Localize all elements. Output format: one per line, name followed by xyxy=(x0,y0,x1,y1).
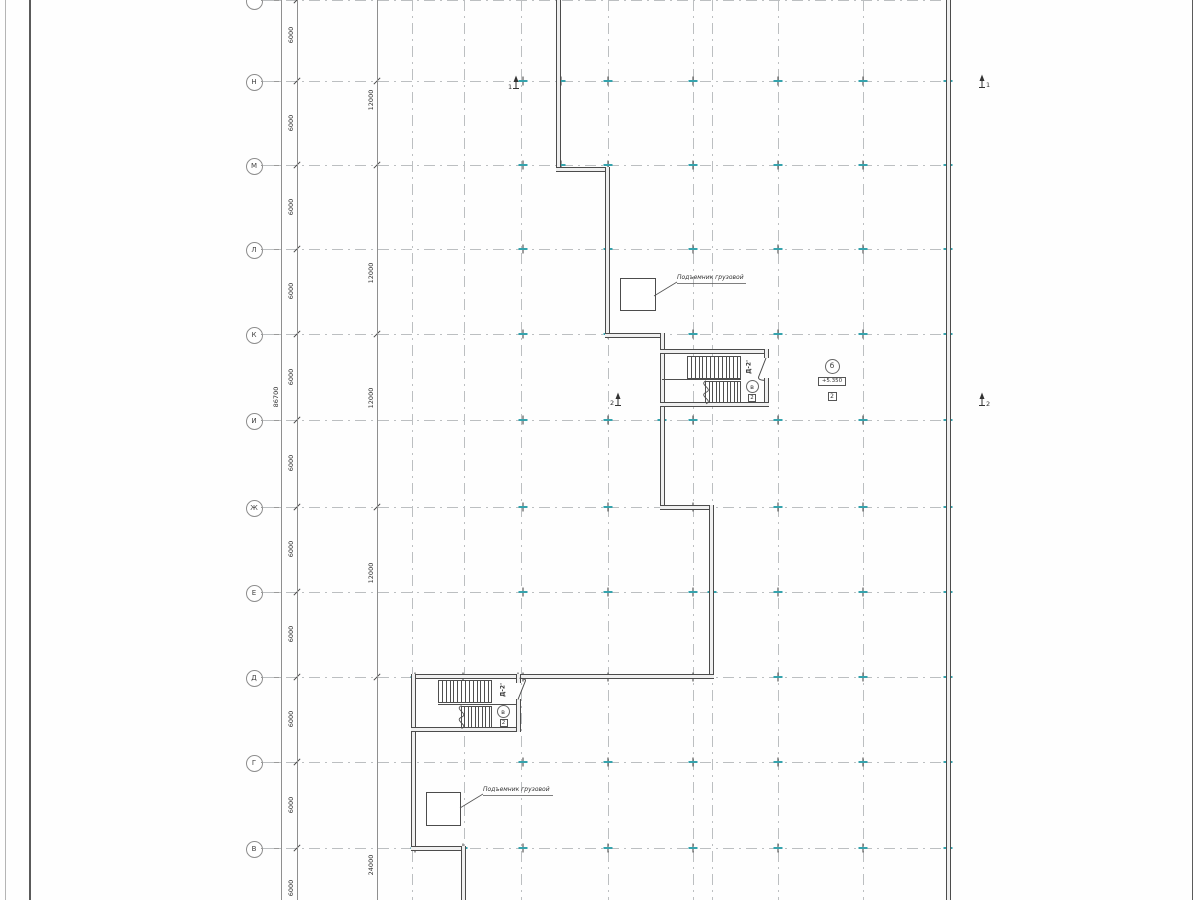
dim-label-6000: 6000 xyxy=(287,711,295,728)
axis-bubble: К xyxy=(246,327,263,344)
axis-tick-marker xyxy=(859,419,868,421)
axis-tick-marker xyxy=(774,591,783,593)
axis-tick-marker xyxy=(774,676,783,678)
stair-lower-ref-circle: в xyxy=(497,705,510,718)
axis-tick-marker xyxy=(519,80,528,82)
dim-label-6000: 6000 xyxy=(287,115,295,132)
axis-bubble: Ж xyxy=(246,500,263,517)
stair-upper-wall-top xyxy=(660,349,769,354)
wall-segment xyxy=(556,167,610,172)
axis-bubble: Н xyxy=(246,74,263,91)
dim-line-12000 xyxy=(377,0,378,900)
wall-segment xyxy=(660,505,714,510)
axis-tick-marker xyxy=(774,80,783,82)
stair-tread xyxy=(485,706,486,728)
axis-tick-marker xyxy=(774,847,783,849)
dim-label-6000: 6000 xyxy=(287,541,295,558)
axis-tick-marker xyxy=(774,506,783,508)
stair-tread xyxy=(702,356,703,379)
wall-segment xyxy=(461,846,466,900)
axis-tick-marker xyxy=(519,248,528,250)
axis-tick-marker xyxy=(689,333,698,335)
stair-tread xyxy=(737,381,738,403)
axis-tick-marker xyxy=(689,248,698,250)
frame-left-inner-line xyxy=(29,0,31,900)
stair-tread xyxy=(723,381,724,403)
axis-tick-marker xyxy=(689,419,698,421)
wall-segment xyxy=(709,505,714,679)
level-elevation-box: +5.350 xyxy=(818,377,846,386)
axis-tick-marker xyxy=(519,333,528,335)
stair-tread xyxy=(714,356,715,379)
dim-label-6000: 6000 xyxy=(287,626,295,643)
stair-tread xyxy=(709,381,710,403)
axis-tick-marker xyxy=(604,80,613,82)
section-2-left-arrow xyxy=(615,393,621,406)
stair-tread xyxy=(716,381,717,403)
dim-label-24000: 24000 xyxy=(367,855,375,876)
tread-band xyxy=(461,706,492,728)
dim-label-12000: 12000 xyxy=(367,263,375,284)
grid-column-line xyxy=(712,0,713,900)
axis-tick-marker xyxy=(604,164,613,166)
stair-tread xyxy=(729,356,730,379)
dim-label-6000: 6000 xyxy=(287,199,295,216)
stair-mid-landing-line xyxy=(662,379,741,380)
dim-label-6000: 6000 xyxy=(287,27,295,44)
dim-label-12000: 12000 xyxy=(367,388,375,409)
axis-tick-marker xyxy=(774,164,783,166)
axis-tick-marker xyxy=(859,591,868,593)
stair-tread xyxy=(475,706,476,728)
section-1-right-arrow xyxy=(979,75,985,88)
axis-tick-marker xyxy=(689,164,698,166)
dim-label-6000: 6000 xyxy=(287,283,295,300)
stair-tread xyxy=(691,356,692,379)
wall-segment xyxy=(605,167,610,338)
stair-tread xyxy=(453,680,454,703)
stair-tread xyxy=(734,381,735,403)
section-2-right-arrow xyxy=(979,393,985,406)
section-2-right-label: 2 xyxy=(986,400,990,408)
axis-bubble: Л xyxy=(246,242,263,259)
stair-tread xyxy=(457,680,458,703)
dim-label-6000: 6000 xyxy=(287,880,295,897)
axis-bubble: В xyxy=(246,841,263,858)
axis-tick-marker xyxy=(519,761,528,763)
stair-tread xyxy=(471,706,472,728)
axis-tick-marker xyxy=(604,591,613,593)
axis-tick-marker xyxy=(859,506,868,508)
wall-segment xyxy=(556,0,561,172)
stair-tread xyxy=(737,356,738,379)
stair-tread xyxy=(446,680,447,703)
axis-tick-marker xyxy=(519,591,528,593)
stair-upper-sheet-box: 2 xyxy=(748,394,756,402)
dim-label-6000: 6000 xyxy=(287,797,295,814)
hoist-upper-leader-line xyxy=(654,282,746,296)
stair-tread xyxy=(461,680,462,703)
stair-tread xyxy=(726,356,727,379)
hoist-upper-label: Подъемник грузовой xyxy=(677,274,744,281)
grid-column-line xyxy=(464,0,465,900)
axis-bubble xyxy=(246,0,263,10)
stair-tread xyxy=(722,356,723,379)
frame-right-line xyxy=(1192,0,1193,900)
stair-tread xyxy=(710,356,711,379)
axis-bubble: Е xyxy=(246,585,263,602)
stair-tread xyxy=(730,381,731,403)
stair-tread xyxy=(468,706,469,728)
wall-segment xyxy=(411,674,416,851)
axis-tick-marker xyxy=(519,164,528,166)
axis-tick-marker xyxy=(774,248,783,250)
stair-lower-sheet-box: 2 xyxy=(500,719,508,727)
stair-tread xyxy=(469,680,470,703)
wall-segment xyxy=(411,846,466,851)
dim-label-6000: 6000 xyxy=(287,455,295,472)
section-1-left-label: 1 xyxy=(508,83,512,91)
axis-bubble: И xyxy=(246,413,263,430)
dim-line-overall xyxy=(281,0,282,900)
dim-label-12000: 12000 xyxy=(367,563,375,584)
axis-tick-marker xyxy=(519,419,528,421)
axis-tick-marker xyxy=(604,419,613,421)
stair-tread xyxy=(450,680,451,703)
axis-tick-marker xyxy=(689,761,698,763)
stair-upper-door-label: Д-2' xyxy=(746,360,753,374)
hoist-lower-label: Подъемник грузовой xyxy=(483,786,550,793)
axis-tick-marker xyxy=(774,761,783,763)
frame-left-outer-line xyxy=(5,0,6,900)
axis-tick-marker xyxy=(689,80,698,82)
stair-tread xyxy=(733,356,734,379)
axis-tick-marker xyxy=(859,80,868,82)
axis-tick-marker xyxy=(519,847,528,849)
axis-tick-marker xyxy=(859,164,868,166)
level-sheet-box: 2 xyxy=(828,392,837,401)
wall-segment xyxy=(605,333,665,338)
hoist-lower-leader-line xyxy=(460,794,553,808)
stair-lower-wall-right xyxy=(516,699,521,732)
axis-tick-marker xyxy=(689,847,698,849)
stair-tread xyxy=(719,381,720,403)
axis-tick-marker xyxy=(604,506,613,508)
stair-tread xyxy=(695,356,696,379)
hoist-lower-box xyxy=(426,792,461,826)
stair-tread xyxy=(488,680,489,703)
stair-lower-door-label: Д-2' xyxy=(500,683,507,697)
axis-bubble: М xyxy=(246,158,263,175)
stair-tread xyxy=(706,356,707,379)
stair-upper-ref-circle: в xyxy=(746,380,759,393)
axis-tick-marker xyxy=(604,847,613,849)
wall-segment-east xyxy=(946,0,951,900)
axis-tick-marker xyxy=(859,676,868,678)
dim-label-12000: 12000 xyxy=(367,90,375,111)
stair-tread xyxy=(473,680,474,703)
dim-label-overall: 86700 xyxy=(272,387,280,408)
axis-bubble: Г xyxy=(246,755,263,772)
stair-tread xyxy=(442,680,443,703)
section-1-left-arrow xyxy=(513,76,519,89)
stair-lower-door-jamb xyxy=(516,674,521,683)
hoist-upper-box xyxy=(620,278,656,311)
section-1-right-label: 1 xyxy=(986,81,990,89)
axis-tick-marker xyxy=(774,419,783,421)
dim-label-6000: 6000 xyxy=(287,369,295,386)
grid-row-line xyxy=(263,0,948,1)
axis-tick-marker xyxy=(859,333,868,335)
axis-tick-marker xyxy=(859,248,868,250)
stair-tread xyxy=(480,680,481,703)
stair-tread xyxy=(464,706,465,728)
axis-bubble: Д xyxy=(246,670,263,687)
stair-tread xyxy=(489,706,490,728)
wall-segment xyxy=(411,674,714,679)
axis-tick-marker xyxy=(774,333,783,335)
annotation-overlay xyxy=(0,0,1200,900)
stair-tread xyxy=(477,680,478,703)
axis-tick-marker xyxy=(859,847,868,849)
stair-tread xyxy=(718,356,719,379)
wall-segment xyxy=(660,333,665,510)
drawing-sheet: НМЛКИЖЕДГВ600060006000600060006000600060… xyxy=(0,0,1200,900)
stair-tread xyxy=(712,381,713,403)
section-2-left-label: 2 xyxy=(610,399,614,407)
dim-line-6000 xyxy=(297,0,298,900)
axis-tick-marker xyxy=(604,761,613,763)
stair-tread xyxy=(465,680,466,703)
stair-upper-door-jamb xyxy=(764,349,769,358)
axis-tick-marker xyxy=(689,591,698,593)
axis-tick-marker xyxy=(519,506,528,508)
level-ref-circle: б xyxy=(825,359,840,374)
stair-tread xyxy=(482,706,483,728)
axis-tick-marker xyxy=(859,761,868,763)
stair-tread xyxy=(484,680,485,703)
stair-tread xyxy=(699,356,700,379)
stair-tread xyxy=(478,706,479,728)
stair-tread xyxy=(727,381,728,403)
